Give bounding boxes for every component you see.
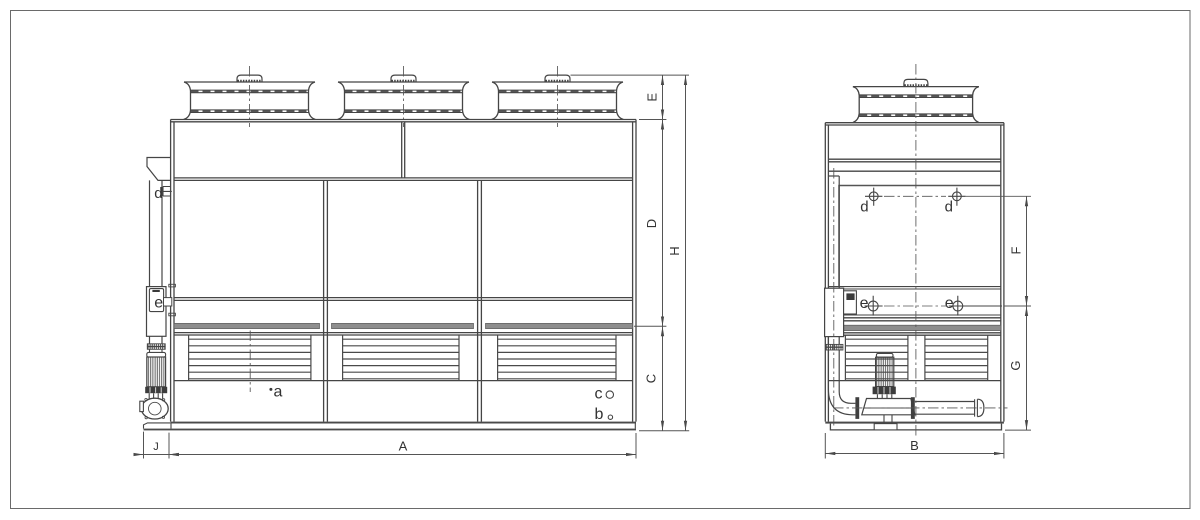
svg-text:B: B xyxy=(910,438,919,453)
svg-text:J: J xyxy=(153,441,159,453)
svg-text:E: E xyxy=(645,93,660,102)
svg-text:d: d xyxy=(945,199,953,216)
svg-text:A: A xyxy=(399,439,408,454)
svg-text:G: G xyxy=(1008,360,1023,370)
svg-text:e: e xyxy=(860,295,869,312)
svg-text:e: e xyxy=(154,294,163,311)
svg-text:C: C xyxy=(644,374,659,383)
svg-text:d: d xyxy=(860,199,868,216)
svg-text:d: d xyxy=(154,185,162,202)
svg-text:a: a xyxy=(274,384,283,401)
svg-text:F: F xyxy=(1009,246,1024,254)
svg-text:c: c xyxy=(595,385,603,402)
svg-text:D: D xyxy=(644,219,659,228)
svg-text:e: e xyxy=(945,295,954,312)
svg-text:b: b xyxy=(595,406,604,423)
svg-text:H: H xyxy=(667,246,682,255)
